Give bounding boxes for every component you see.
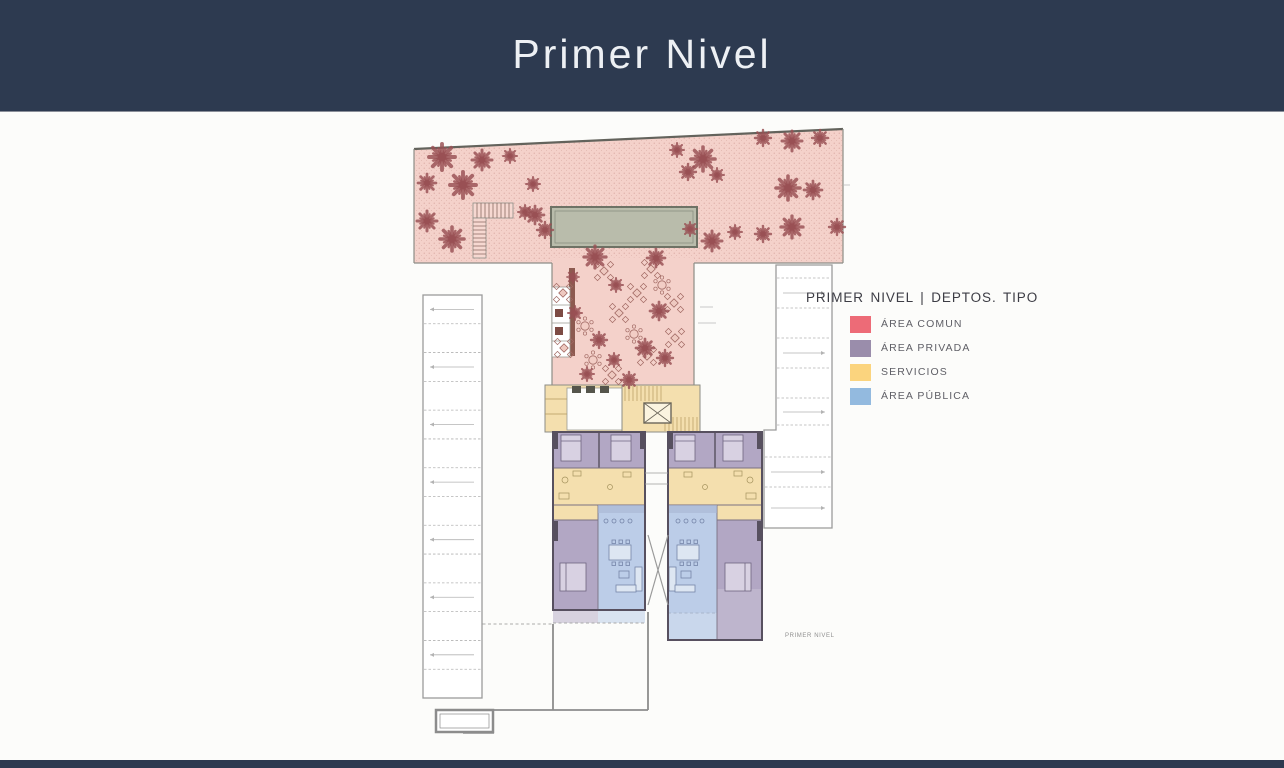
planter-icon — [572, 386, 581, 393]
tree-icon — [472, 150, 492, 170]
dining-set — [609, 540, 631, 566]
tree-icon — [781, 216, 803, 238]
tree-icon — [418, 174, 436, 192]
slide-header: Primer Nivel — [0, 0, 1284, 112]
servicios-swatch-icon — [850, 364, 871, 381]
tree-icon — [567, 271, 579, 283]
services-core — [545, 385, 700, 432]
legend-items: ÁREA COMUNÁREA PRIVADASERVICIOSÁREA PÚBL… — [806, 316, 1066, 405]
tree-icon — [568, 306, 582, 320]
tree-icon — [710, 168, 724, 182]
legend-title: PRIMER NIVEL | DEPTOS. TIPO — [806, 290, 1066, 305]
tree-icon — [417, 211, 437, 231]
kitchen-counter — [668, 505, 717, 513]
tree-icon — [728, 225, 742, 239]
tree-icon — [670, 143, 684, 157]
planter-icon — [600, 386, 609, 393]
tree-icon — [607, 353, 621, 367]
pool — [551, 207, 697, 247]
balcony-left — [553, 610, 598, 623]
corridor-stair — [645, 473, 668, 605]
page-title: Primer Nivel — [0, 0, 1284, 108]
legend-label: SERVICIOS — [881, 364, 948, 381]
legend-item-area-comun: ÁREA COMUN — [850, 316, 1066, 333]
floor-plan: PRIMER NIVEL — [413, 127, 850, 741]
planter-icon — [586, 386, 595, 393]
bed-icon — [723, 435, 743, 461]
tree-icon — [683, 222, 697, 236]
tree-icon — [691, 147, 715, 171]
tree-icon — [829, 219, 845, 235]
tree-icon — [621, 372, 637, 388]
area-publica-swatch-icon — [850, 388, 871, 405]
tree-icon — [580, 367, 594, 381]
plan-legend: PRIMER NIVEL | DEPTOS. TIPO ÁREA COMUNÁR… — [806, 290, 1066, 412]
apartment-unit-left — [553, 432, 645, 623]
tree-icon — [755, 130, 771, 146]
balcony-right — [668, 613, 717, 640]
bed-icon — [611, 435, 631, 461]
tree-icon — [647, 249, 665, 267]
presentation-slide: Primer Nivel — [0, 0, 1284, 768]
tree-icon — [591, 332, 607, 348]
bottom-bar — [0, 760, 1284, 768]
bed-icon — [725, 563, 751, 591]
bed-icon — [561, 435, 581, 461]
legend-label: ÁREA PRIVADA — [881, 340, 970, 357]
dining-set — [677, 540, 699, 566]
tree-icon — [804, 181, 822, 199]
kitchen-counter — [598, 505, 645, 513]
tree-icon — [650, 302, 668, 320]
tree-icon — [776, 176, 800, 200]
tree-icon — [702, 231, 722, 251]
tree-icon — [537, 222, 553, 238]
tree-icon — [755, 226, 771, 242]
tree-icon — [782, 131, 802, 151]
bed-icon — [560, 563, 586, 591]
tree-icon — [680, 164, 696, 180]
tree-icon — [636, 339, 654, 357]
parking-area-left — [423, 295, 482, 698]
apartment-unit-right — [668, 432, 762, 640]
tree-icon — [503, 149, 517, 163]
tree-icon — [518, 205, 532, 219]
tree-icon — [584, 246, 606, 268]
legend-item-area-publica: ÁREA PÚBLICA — [850, 388, 1066, 405]
tree-icon — [440, 227, 464, 251]
legend-item-servicios: SERVICIOS — [850, 364, 1066, 381]
tree-icon — [450, 172, 476, 198]
area-comun-swatch-icon — [850, 316, 871, 333]
tree-icon — [609, 278, 623, 292]
tree-icon — [657, 350, 673, 366]
tree-icon — [526, 177, 540, 191]
bed-icon — [675, 435, 695, 461]
legend-item-area-privada: ÁREA PRIVADA — [850, 340, 1066, 357]
tree-icon — [812, 130, 828, 146]
tree-icon — [429, 144, 455, 170]
legend-label: ÁREA PÚBLICA — [881, 388, 970, 405]
plan-caption: PRIMER NIVEL — [785, 633, 835, 639]
legend-label: ÁREA COMUN — [881, 316, 963, 333]
area-privada-swatch-icon — [850, 340, 871, 357]
